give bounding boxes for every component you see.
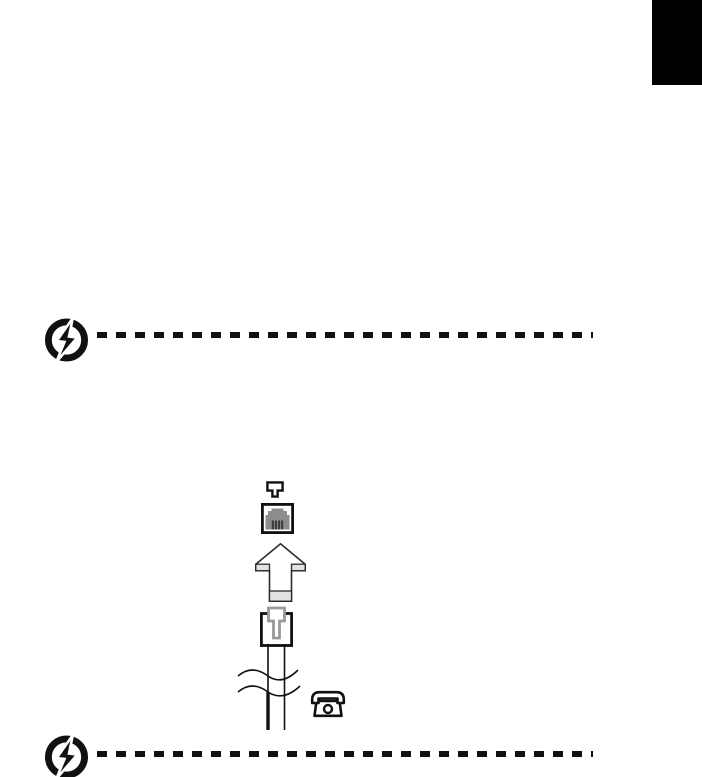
cable-break-waves-icon [236, 644, 306, 730]
up-arrow-icon [255, 543, 306, 602]
language-tab [652, 0, 702, 85]
warning-bottom-icon [44, 734, 89, 777]
manual-page [0, 0, 702, 777]
lightning-warning-icon [44, 734, 89, 777]
telephone-icon [310, 690, 346, 719]
warning-top-divider [97, 332, 593, 338]
warning-bottom-divider [97, 751, 593, 757]
lightning-warning-icon [44, 317, 89, 363]
phone-line-jack-symbol-icon [266, 481, 284, 498]
rj11-plug-icon [260, 606, 293, 647]
rj11-modem-port-icon [261, 503, 294, 534]
warning-top-icon [44, 317, 89, 363]
